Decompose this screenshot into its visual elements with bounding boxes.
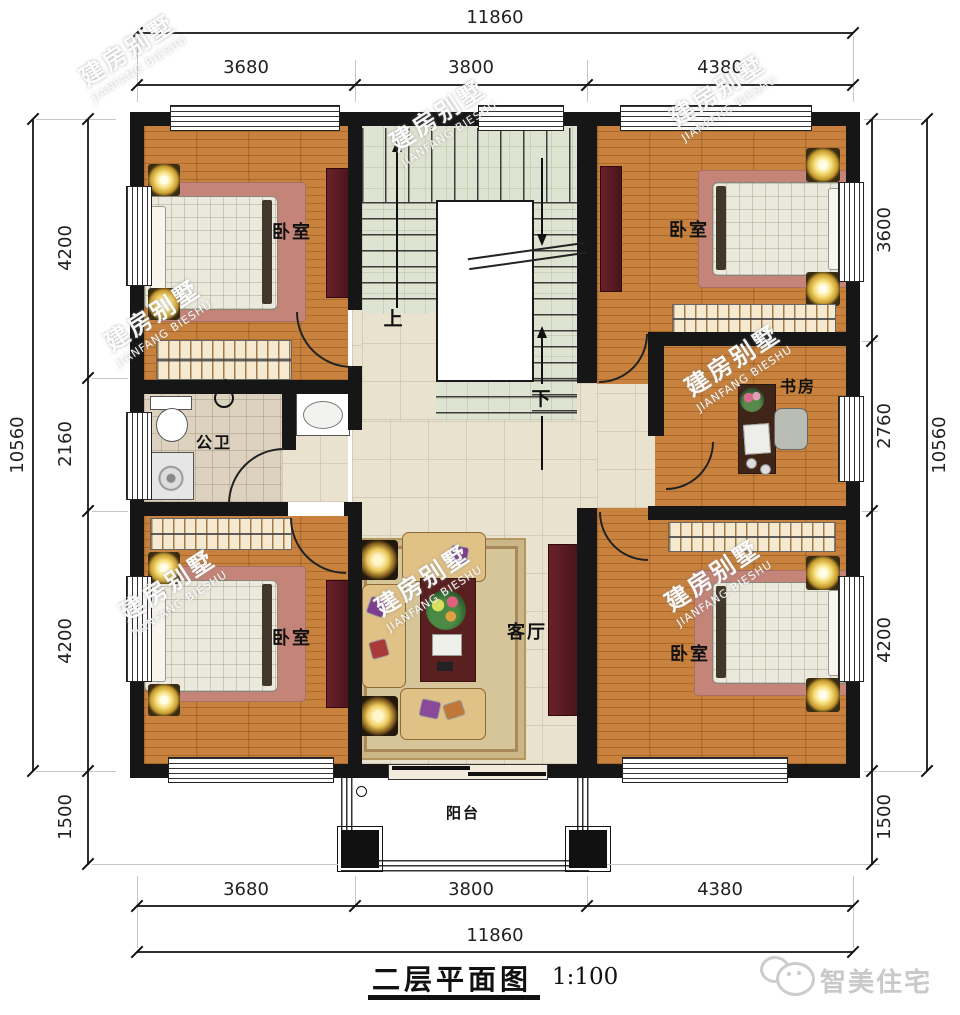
extension-line — [137, 876, 138, 948]
extension-line — [853, 876, 854, 948]
floor-lamp — [358, 696, 398, 736]
dim-left-total: 10560 — [8, 395, 28, 495]
floor-drain — [356, 786, 367, 797]
nightstand-lamp — [148, 684, 180, 716]
cup — [746, 458, 757, 469]
dim-line-bottom-segments — [137, 905, 853, 907]
nightstand-lamp — [806, 556, 840, 590]
room-label-study: 书房 — [770, 376, 826, 398]
toilet-bowl — [156, 408, 188, 442]
sliding-door-panel — [392, 766, 470, 770]
cup — [760, 464, 771, 475]
hall-floor-east — [597, 384, 655, 508]
room-label-bathroom: 公卫 — [188, 432, 240, 454]
sofa-bottom — [400, 688, 486, 740]
wall-v1 — [348, 366, 362, 430]
stair-label-down: 下 — [528, 388, 556, 410]
stair-down-line — [541, 416, 543, 470]
nightstand-lamp — [806, 148, 840, 182]
plan-scale: 1:100 — [552, 964, 618, 990]
window — [126, 412, 152, 500]
dim-line-left-segments — [87, 119, 89, 865]
sliding-door-panel — [468, 772, 546, 776]
dim-left-seg3: 4200 — [56, 591, 76, 691]
wall-bl-top — [130, 502, 288, 516]
papers — [743, 423, 771, 455]
sofa-top — [402, 532, 486, 582]
window — [838, 576, 864, 682]
dim-left-seg2: 2160 — [56, 394, 76, 494]
extension-line — [607, 864, 880, 865]
wall-bl-top — [344, 502, 362, 516]
room-label-bedroom-tr: 卧室 — [659, 220, 719, 242]
sink-basin — [303, 401, 343, 429]
dim-bottom-seg2: 3800 — [421, 880, 521, 900]
tray — [432, 634, 462, 656]
logo-bubble-icon — [776, 962, 815, 996]
window — [838, 182, 864, 282]
window — [126, 186, 152, 286]
nightstand-lamp — [148, 288, 180, 320]
dim-top-seg2: 3800 — [421, 58, 521, 78]
stair-up-line — [396, 152, 398, 308]
nightstand-lamp — [148, 552, 180, 584]
watermark-cn: 建房别墅 — [41, 0, 211, 112]
extension-line — [853, 36, 854, 102]
dim-right-seg2: 2760 — [875, 376, 895, 476]
tv-cabinet — [548, 544, 578, 716]
window — [622, 757, 788, 783]
stair-down-line — [541, 158, 543, 236]
dim-line-top-segments — [137, 84, 853, 86]
window — [478, 105, 564, 131]
extension-line — [92, 378, 128, 379]
dim-top-seg3: 4380 — [670, 58, 770, 78]
dim-left-seg4: 1500 — [56, 767, 76, 867]
dim-top-seg1: 3680 — [196, 58, 296, 78]
floor-plan-canvas: 卧室 卧室 卧室 卧室 公卫 书房 客厅 阳台 上 下 — [0, 0, 960, 1015]
window — [168, 757, 334, 783]
window — [838, 396, 864, 482]
dresser-cabinet — [326, 168, 350, 298]
wardrobe — [150, 518, 292, 550]
cushion — [418, 698, 441, 720]
stair-down-arrow — [537, 234, 547, 246]
nightstand-lamp — [806, 272, 840, 306]
plan-title: 二层平面图 — [372, 958, 532, 998]
wall-v2-bottom — [577, 508, 597, 764]
dim-bottom-seg1: 3680 — [196, 880, 296, 900]
wall-study-west — [648, 332, 664, 436]
balcony-column — [341, 830, 379, 868]
room-label-bedroom-bl: 卧室 — [262, 628, 322, 650]
extension-line — [137, 36, 138, 102]
stair-arrow — [537, 326, 547, 338]
dresser-cabinet — [326, 580, 350, 708]
window — [126, 576, 152, 682]
wardrobe — [668, 522, 836, 552]
stair-treads-left — [362, 202, 436, 314]
stairwell-opening — [436, 200, 534, 382]
window — [620, 105, 812, 131]
extension-line — [587, 876, 588, 904]
room-label-bedroom-tl: 卧室 — [262, 222, 322, 244]
dim-right-total: 10560 — [930, 395, 950, 495]
nightstand-lamp — [806, 678, 840, 712]
dim-line-left-total — [32, 119, 34, 771]
logo-text: 智美住宅 — [820, 962, 932, 999]
wall-study-bottom — [648, 506, 848, 520]
extension-line — [92, 864, 338, 865]
dim-bottom-total: 11860 — [400, 926, 590, 946]
wall-v1 — [348, 112, 362, 310]
room-label-living: 客厅 — [503, 622, 551, 644]
extension-line — [355, 876, 356, 904]
dim-left-seg1: 4200 — [56, 198, 76, 298]
floor-lamp — [358, 540, 398, 580]
bed-foot — [262, 200, 272, 304]
logo-bubble-eye — [797, 971, 801, 975]
bed-pillow — [150, 206, 166, 300]
wall-v1 — [348, 502, 362, 764]
wall-bath-right — [282, 394, 296, 450]
wall-bath-top — [130, 380, 362, 394]
bed-pillow — [150, 590, 166, 682]
wardrobe — [156, 340, 292, 380]
cushion — [449, 545, 470, 566]
room-label-balcony: 阳台 — [435, 802, 491, 824]
dim-right-seg4: 1500 — [875, 767, 895, 867]
dim-line-bottom-total — [137, 951, 853, 953]
extension-line — [92, 511, 128, 512]
wall-study-top — [648, 332, 848, 346]
stair-up-arrow — [392, 140, 402, 152]
desk-chair — [774, 408, 808, 450]
washing-machine — [148, 452, 194, 500]
remote — [437, 662, 453, 671]
dim-line-right-total — [926, 119, 928, 771]
dresser-cabinet — [600, 166, 622, 292]
dim-right-seg3: 4200 — [875, 590, 895, 690]
wardrobe — [672, 304, 836, 334]
room-label-bedroom-br: 卧室 — [660, 644, 720, 666]
flower-bouquet — [426, 590, 466, 630]
balcony-column — [569, 830, 607, 868]
stair-down-line — [541, 338, 543, 384]
dim-bottom-seg3: 4380 — [670, 880, 770, 900]
logo-bubble-eye — [787, 972, 791, 976]
title-underline — [368, 995, 540, 1000]
window — [170, 105, 340, 131]
dim-top-total: 11860 — [400, 8, 590, 28]
dim-line-top-total — [137, 32, 853, 34]
flower-pot — [740, 388, 764, 412]
nightstand-lamp — [148, 164, 180, 196]
extension-line — [36, 119, 116, 120]
extension-line — [36, 771, 116, 772]
dim-line-right-segments — [871, 119, 873, 865]
stair-label-up: 上 — [380, 308, 408, 330]
dim-right-seg1: 3600 — [875, 180, 895, 280]
